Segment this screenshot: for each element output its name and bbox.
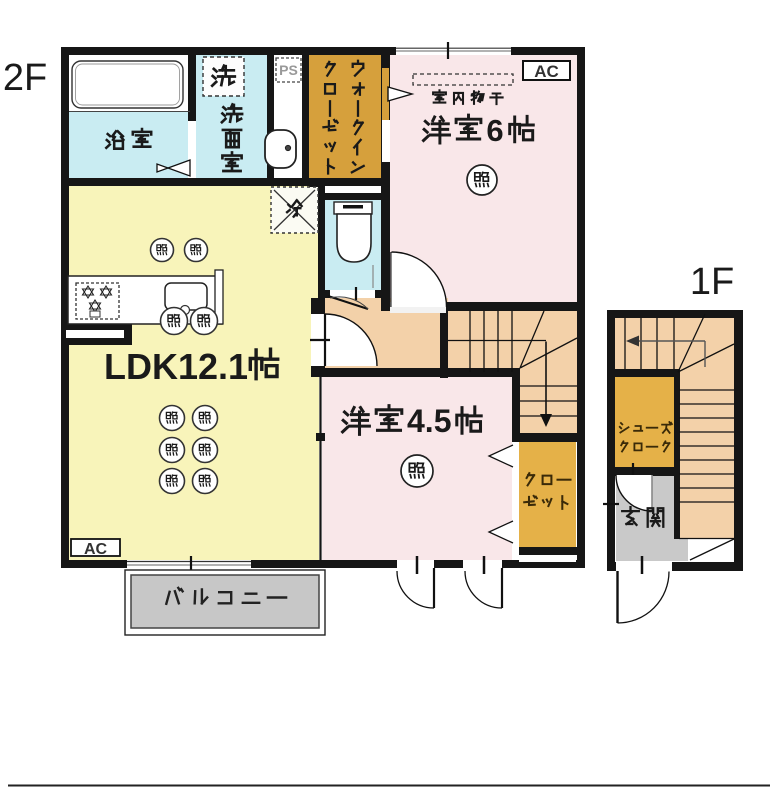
svg-text:1F: 1F bbox=[690, 261, 734, 303]
svg-text:2F: 2F bbox=[3, 57, 47, 99]
svg-text:LDK12.1: LDK12.1 bbox=[104, 346, 248, 387]
svg-text:PS: PS bbox=[279, 62, 298, 78]
svg-text:4.5: 4.5 bbox=[407, 403, 451, 439]
svg-text:6: 6 bbox=[486, 113, 503, 148]
svg-text:AC: AC bbox=[534, 62, 559, 81]
svg-text:AC: AC bbox=[84, 541, 108, 558]
